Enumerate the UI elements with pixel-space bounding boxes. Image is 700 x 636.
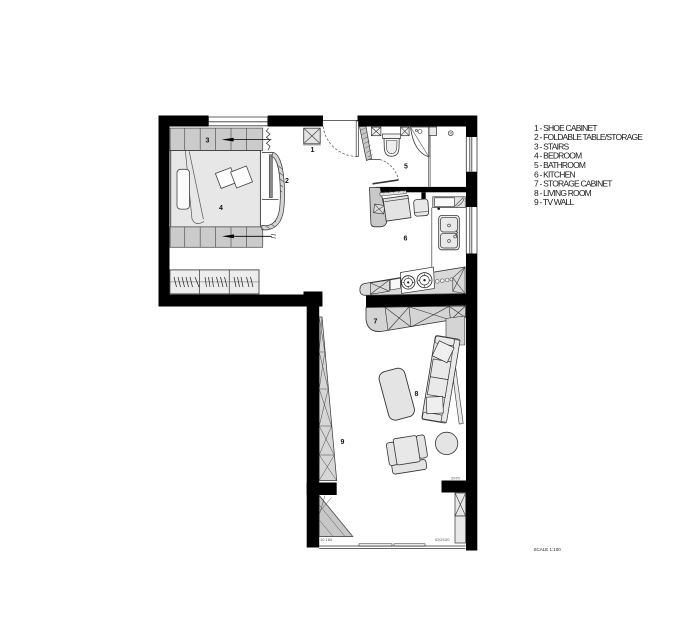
svg-text:4: 4 [219,205,223,212]
svg-text:9: 9 [341,439,345,446]
svg-text:8: 8 [415,391,419,398]
svg-text:10 160: 10 160 [320,537,333,542]
svg-text:6: 6 [404,236,408,243]
svg-text:7: 7 [374,319,378,326]
svg-text:2070: 2070 [451,476,461,481]
svg-text:SCALE 1:100: SCALE 1:100 [534,547,562,552]
svg-text:020/100: 020/100 [435,537,450,542]
svg-text:2: 2 [285,178,289,185]
svg-text:9 - TV WALL: 9 - TV WALL [534,197,574,207]
svg-text:5: 5 [404,164,408,171]
svg-text:1: 1 [311,147,315,154]
svg-text:3: 3 [206,138,210,145]
